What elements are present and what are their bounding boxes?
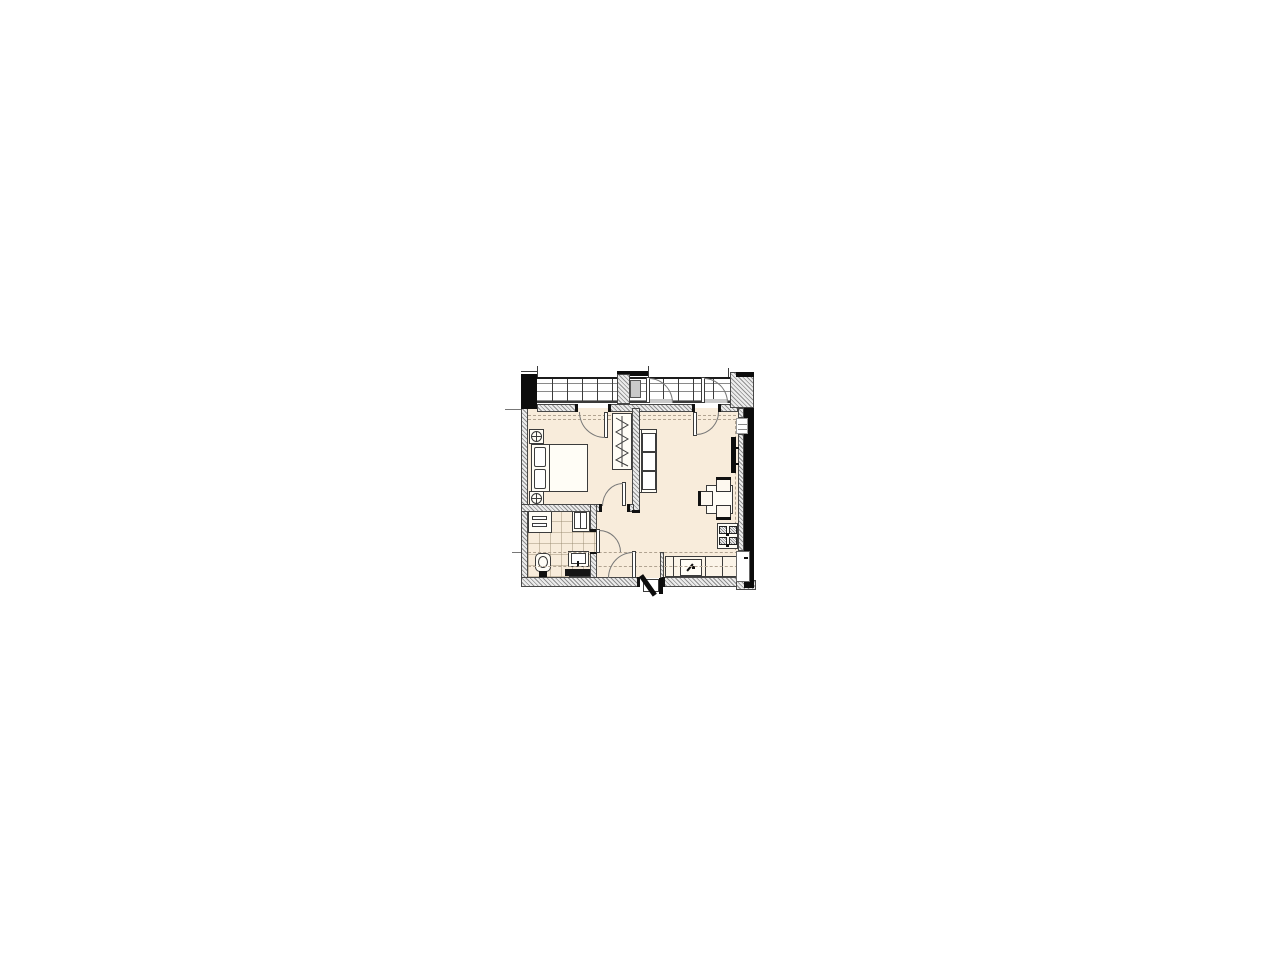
structural-column-left (521, 374, 537, 409)
extension-tick (537, 366, 538, 377)
entry-frame-return (659, 578, 663, 594)
tv-mount (736, 447, 739, 449)
shaft-tick (744, 557, 748, 559)
door-jamb (627, 504, 630, 512)
lamp-cross-v (536, 494, 537, 503)
floor-plan-canvas (0, 0, 1280, 960)
wall-end-cap (632, 510, 640, 513)
wall-bottom-left (521, 577, 640, 587)
wall-top-right-block (730, 372, 754, 408)
wall-facade-segment (537, 404, 578, 412)
mullion (582, 379, 583, 403)
extension-tick (648, 366, 649, 377)
sofa-cushion (642, 433, 656, 452)
pillow (534, 469, 546, 489)
wall-left (521, 408, 528, 587)
bed-headboard-line (549, 444, 550, 492)
extension-tick (512, 552, 521, 553)
mullion (567, 379, 568, 403)
mullion (552, 379, 553, 403)
soffit-dash-bottom-1 (528, 552, 748, 553)
lintel-bar-top-right (736, 372, 754, 377)
shower-division (580, 512, 581, 529)
wardrobe (612, 413, 632, 470)
wall-bathroom-right-top (590, 504, 597, 532)
niche-line (738, 429, 747, 430)
balcony-column (617, 374, 630, 404)
chair-backrest (698, 491, 701, 506)
tv-wall-panel (731, 437, 736, 473)
door-jamb (575, 404, 578, 412)
soffit-dash-bottom-2 (528, 566, 748, 567)
lamp-cross-v (536, 432, 537, 441)
wall-facade-segment (608, 404, 695, 412)
door-jamb (718, 404, 721, 412)
wall-bedroom-living-divider (632, 408, 640, 513)
entry-jamb-stub (660, 552, 664, 578)
sofa-cushion (642, 471, 656, 490)
chair-backrest (716, 517, 731, 520)
extension-tick (521, 371, 537, 372)
washing-machine (528, 511, 552, 533)
burner-knob (726, 544, 729, 547)
hanger-rail-icon (613, 414, 631, 469)
washer-detail (532, 516, 547, 520)
wall-bottom-right (662, 577, 738, 587)
right-wall-niche (736, 418, 748, 434)
washer-detail (532, 523, 547, 527)
balcony-column-panel (630, 380, 641, 398)
extension-tick (728, 368, 729, 377)
sofa-cushion (642, 452, 656, 471)
door-jamb (692, 404, 695, 412)
tv-mount (736, 463, 739, 465)
mullion (597, 379, 598, 403)
mullion (678, 379, 679, 403)
pillow (534, 447, 546, 467)
wall-bathroom-right-bottom (590, 552, 597, 578)
chair-backrest (716, 477, 731, 480)
burner-icon (729, 526, 737, 534)
mullion (612, 379, 613, 403)
niche-line (738, 424, 747, 425)
burner-icon (729, 537, 737, 545)
door-jamb (608, 404, 611, 412)
extension-tick (505, 409, 521, 410)
burner-knob (726, 533, 729, 536)
apartment-floor-plan (0, 0, 1280, 960)
mullion (693, 379, 694, 403)
right-wall-shaft (736, 551, 750, 582)
